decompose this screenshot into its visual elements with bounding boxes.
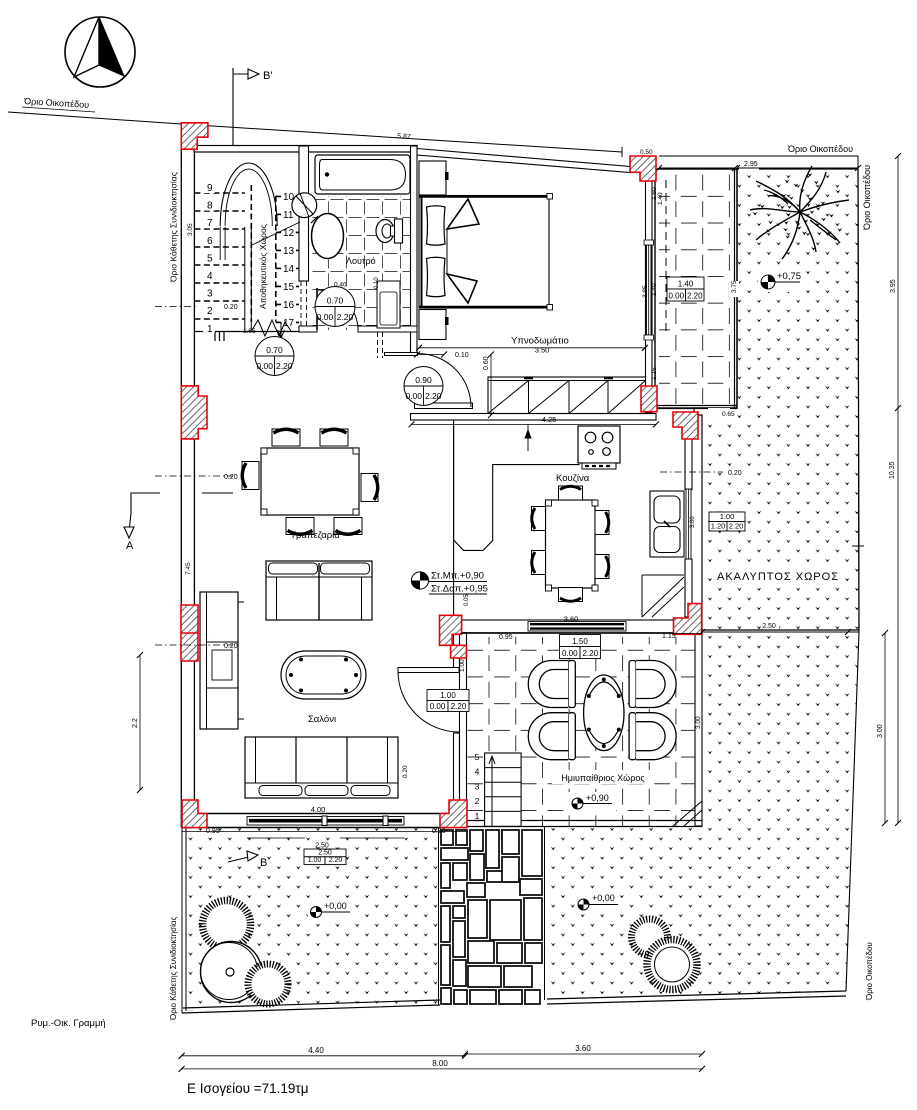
- svg-text:Λουτρό: Λουτρό: [346, 256, 376, 266]
- svg-text:2.20: 2.20: [687, 292, 703, 301]
- svg-text:2.95: 2.95: [744, 161, 758, 168]
- svg-text:10.35: 10.35: [889, 461, 896, 479]
- svg-text:+0,75: +0,75: [777, 271, 801, 282]
- svg-text:ΑΚΑΛΥΠΤΟΣ ΧΩΡΟΣ: ΑΚΑΛΥΠΤΟΣ ΧΩΡΟΣ: [717, 571, 839, 583]
- svg-text:16: 16: [283, 300, 295, 311]
- svg-text:1.00: 1.00: [308, 857, 322, 864]
- svg-text:0.95: 0.95: [206, 828, 220, 835]
- svg-text:3.00: 3.00: [877, 724, 884, 738]
- svg-text:2.50: 2.50: [318, 849, 332, 856]
- svg-text:4.00: 4.00: [311, 805, 326, 814]
- svg-text:+0,00: +0,00: [592, 893, 615, 903]
- svg-text:5: 5: [475, 752, 480, 762]
- svg-text:8.00: 8.00: [432, 1059, 448, 1068]
- svg-text:3: 3: [475, 781, 480, 791]
- svg-text:Ε Ισογείου =71.19τμ: Ε Ισογείου =71.19τμ: [187, 1081, 309, 1096]
- svg-text:2.20: 2.20: [329, 857, 343, 864]
- svg-text:0.20: 0.20: [224, 474, 238, 481]
- svg-text:2.2: 2.2: [132, 718, 139, 728]
- svg-text:3.05: 3.05: [187, 223, 194, 236]
- svg-text:2: 2: [207, 306, 213, 317]
- svg-text:7.45: 7.45: [185, 562, 192, 575]
- svg-text:Σαλόνι: Σαλόνι: [308, 714, 336, 725]
- svg-text:1.40: 1.40: [657, 192, 664, 205]
- svg-text:Στ.Δαπ.+0,95: Στ.Δαπ.+0,95: [431, 584, 488, 595]
- svg-text:0.60: 0.60: [483, 356, 490, 370]
- svg-text:15: 15: [283, 282, 295, 293]
- svg-text:0.70: 0.70: [327, 296, 344, 306]
- svg-text:0.00: 0.00: [405, 391, 422, 401]
- svg-text:Τραπεζαρία: Τραπεζαρία: [290, 530, 340, 541]
- svg-text:2.20: 2.20: [582, 649, 598, 658]
- svg-text:3.60: 3.60: [564, 615, 579, 624]
- svg-text:0.00: 0.00: [562, 649, 578, 658]
- svg-text:1: 1: [207, 324, 213, 335]
- svg-text:14: 14: [283, 264, 295, 275]
- svg-text:1.00: 1.00: [720, 512, 735, 521]
- svg-text:0.20: 0.20: [402, 765, 409, 778]
- svg-text:2.50: 2.50: [762, 623, 776, 630]
- svg-text:1.50: 1.50: [572, 637, 588, 646]
- svg-text:3.60: 3.60: [575, 1044, 591, 1053]
- svg-text:1.65: 1.65: [243, 328, 256, 335]
- svg-text:11: 11: [283, 210, 294, 221]
- svg-text:Ρυμ.-Οικ. Γραμμή: Ρυμ.-Οικ. Γραμμή: [31, 1018, 106, 1029]
- svg-text:Β: Β: [260, 857, 267, 869]
- svg-text:Όριο Οικοπέδου: Όριο Οικοπέδου: [862, 165, 872, 231]
- svg-text:1.15: 1.15: [651, 367, 658, 380]
- svg-text:Κουζίνα: Κουζίνα: [556, 473, 590, 484]
- svg-text:2.20: 2.20: [425, 391, 442, 401]
- svg-text:1.40: 1.40: [678, 280, 694, 289]
- svg-text:1: 1: [475, 811, 480, 821]
- svg-text:1.40: 1.40: [651, 283, 658, 296]
- svg-text:2.20: 2.20: [729, 522, 744, 531]
- svg-text:3.85: 3.85: [642, 285, 649, 298]
- svg-text:1.00: 1.00: [459, 659, 466, 672]
- svg-text:0.90: 0.90: [415, 375, 432, 385]
- svg-text:3.75: 3.75: [731, 280, 738, 293]
- svg-text:0.50: 0.50: [640, 149, 653, 156]
- svg-text:8: 8: [207, 201, 213, 212]
- svg-text:0.00: 0.00: [256, 361, 273, 371]
- svg-text:Στ.Μπ.+0,90: Στ.Μπ.+0,90: [431, 571, 484, 582]
- svg-text:0.00: 0.00: [430, 702, 446, 711]
- svg-text:Όριο Κάθετης Συνιδιοκτησίας: Όριο Κάθετης Συνιδιοκτησίας: [169, 917, 178, 1021]
- svg-text:2.20: 2.20: [451, 702, 467, 711]
- svg-text:13: 13: [283, 246, 295, 257]
- svg-text:3.00: 3.00: [695, 716, 702, 729]
- svg-text:Όριο Κάθετης Συνιδιοκτησίας: Όριο Κάθετης Συνιδιοκτησίας: [169, 172, 179, 283]
- svg-text:Όριο Οικοπέδου: Όριο Οικοπέδου: [865, 942, 874, 1001]
- svg-text:4: 4: [475, 767, 480, 777]
- svg-text:4: 4: [207, 271, 213, 282]
- svg-text:2.20: 2.20: [276, 361, 293, 371]
- svg-text:3.95: 3.95: [890, 279, 897, 293]
- svg-text:Όριο Οικοπέδου: Όριο Οικοπέδου: [787, 144, 853, 154]
- svg-text:0.20: 0.20: [224, 643, 238, 650]
- svg-text:Α: Α: [126, 540, 134, 552]
- svg-text:1.15: 1.15: [662, 633, 676, 640]
- svg-text:+0,00: +0,00: [324, 901, 347, 911]
- svg-text:0.00: 0.00: [317, 312, 334, 322]
- svg-text:2.20: 2.20: [337, 312, 354, 322]
- svg-text:0.10: 0.10: [374, 277, 380, 289]
- svg-text:0.20: 0.20: [728, 470, 742, 477]
- svg-text:2: 2: [475, 796, 480, 806]
- svg-text:0.90: 0.90: [432, 828, 446, 835]
- svg-text:Ημιυπαίθριος Χώρος: Ημιυπαίθριος Χώρος: [561, 773, 645, 783]
- svg-text:5: 5: [207, 253, 213, 264]
- svg-text:0.65: 0.65: [722, 411, 735, 418]
- svg-text:0.70: 0.70: [266, 345, 283, 355]
- svg-text:1.00: 1.00: [440, 691, 456, 700]
- svg-text:0.10: 0.10: [455, 352, 469, 359]
- svg-text:0.00: 0.00: [668, 292, 684, 301]
- svg-text:7: 7: [207, 218, 213, 229]
- svg-text:1.20: 1.20: [711, 522, 726, 531]
- svg-text:3.00: 3.00: [690, 516, 696, 528]
- svg-text:6: 6: [207, 236, 213, 247]
- svg-text:0.05: 0.05: [464, 594, 470, 606]
- svg-text:4.40: 4.40: [308, 1046, 324, 1055]
- svg-text:2.50: 2.50: [315, 843, 329, 850]
- svg-text:+0,90: +0,90: [586, 793, 609, 803]
- svg-text:Β': Β': [263, 70, 272, 82]
- svg-text:0.20: 0.20: [224, 304, 238, 311]
- svg-text:Αποθηκευτικός Χώρος: Αποθηκευτικός Χώρος: [258, 224, 268, 309]
- svg-text:3: 3: [207, 289, 213, 300]
- svg-text:5.87: 5.87: [397, 133, 411, 141]
- svg-text:4.25: 4.25: [542, 415, 557, 424]
- svg-text:3.50: 3.50: [535, 346, 550, 355]
- svg-text:9: 9: [207, 183, 213, 194]
- svg-text:0.95: 0.95: [499, 634, 513, 641]
